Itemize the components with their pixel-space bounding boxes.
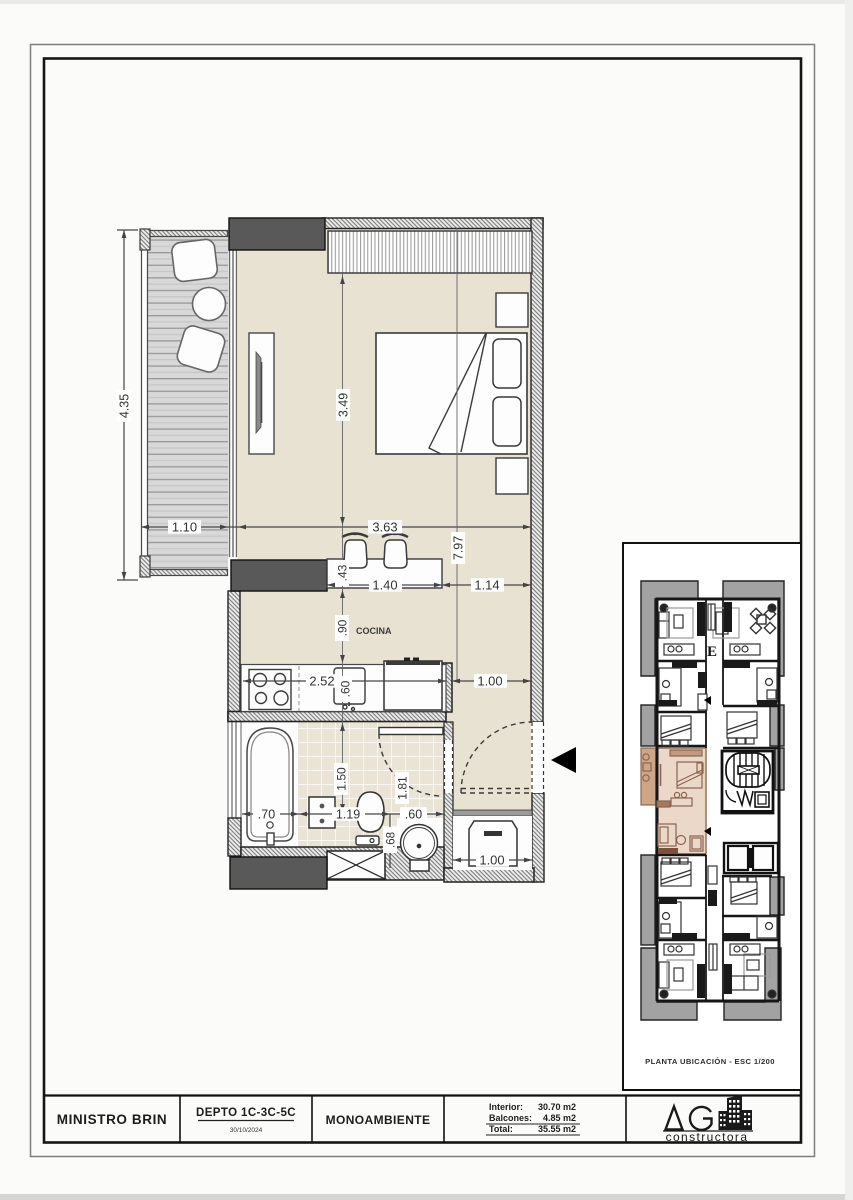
svg-text:.70: .70 bbox=[258, 808, 275, 822]
svg-text:2.52: 2.52 bbox=[309, 674, 334, 689]
svg-text:1.14: 1.14 bbox=[474, 578, 499, 593]
svg-text:PLANTA UBICACIÓN - ESC 1/200: PLANTA UBICACIÓN - ESC 1/200 bbox=[645, 1057, 775, 1066]
svg-text:1.00: 1.00 bbox=[479, 853, 504, 868]
svg-text:.60: .60 bbox=[339, 680, 353, 697]
svg-text:1.40: 1.40 bbox=[372, 578, 397, 593]
svg-text:1.50: 1.50 bbox=[335, 767, 349, 791]
svg-text:.68: .68 bbox=[386, 832, 398, 848]
svg-text:1.10: 1.10 bbox=[172, 520, 197, 535]
svg-text:Balcones:: Balcones: bbox=[489, 1113, 532, 1123]
svg-text:7.97: 7.97 bbox=[452, 536, 466, 560]
svg-text:1.81: 1.81 bbox=[396, 776, 410, 800]
svg-text:4.35: 4.35 bbox=[118, 394, 132, 418]
svg-text:3.49: 3.49 bbox=[337, 393, 351, 417]
svg-text:4.85 m2: 4.85 m2 bbox=[543, 1113, 576, 1123]
svg-text:30/10/2024: 30/10/2024 bbox=[230, 1127, 263, 1134]
svg-text:DEPTO 1C-3C-5C: DEPTO 1C-3C-5C bbox=[196, 1107, 296, 1119]
svg-text:1.00: 1.00 bbox=[477, 674, 502, 689]
svg-text:Total:: Total: bbox=[489, 1124, 513, 1134]
svg-text:3.63: 3.63 bbox=[372, 520, 397, 535]
svg-text:E: E bbox=[707, 644, 717, 660]
svg-text:constructora: constructora bbox=[666, 1130, 749, 1144]
svg-text:.60: .60 bbox=[405, 808, 422, 822]
svg-text:.43: .43 bbox=[336, 564, 350, 581]
svg-text:.90: .90 bbox=[336, 619, 350, 636]
svg-text:30.70 m2: 30.70 m2 bbox=[538, 1102, 576, 1112]
svg-text:Interior:: Interior: bbox=[489, 1102, 523, 1112]
svg-text:COCINA: COCINA bbox=[356, 626, 392, 636]
svg-text:MINISTRO BRIN: MINISTRO BRIN bbox=[57, 1112, 168, 1127]
svg-text:MONOAMBIENTE: MONOAMBIENTE bbox=[326, 1113, 431, 1127]
svg-text:35.55 m2: 35.55 m2 bbox=[538, 1124, 576, 1134]
svg-text:1.19: 1.19 bbox=[336, 808, 360, 822]
